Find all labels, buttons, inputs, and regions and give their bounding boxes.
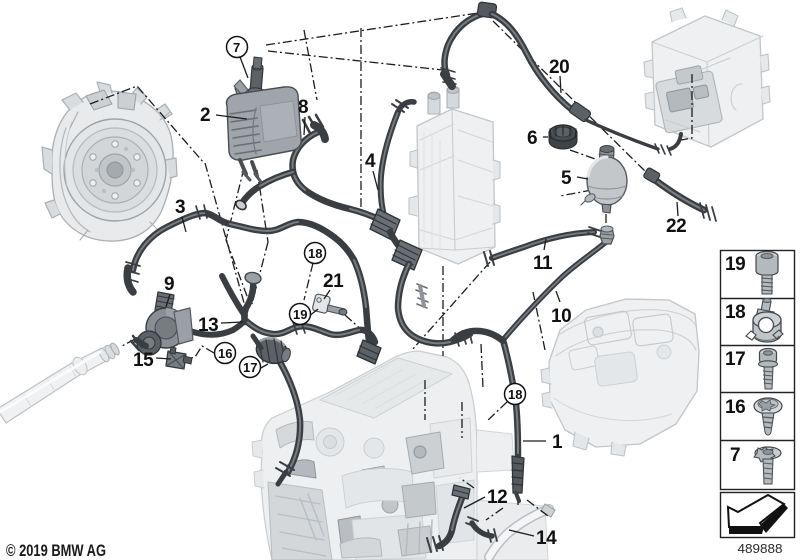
svg-text:7: 7 [730,445,740,466]
svg-text:16: 16 [218,346,232,361]
svg-text:11: 11 [533,253,553,274]
svg-text:489888: 489888 [738,541,783,556]
svg-text:12: 12 [487,487,507,508]
svg-text:3: 3 [175,197,185,218]
svg-text:18: 18 [508,387,522,402]
svg-text:17: 17 [243,360,257,375]
svg-text:16: 16 [725,397,745,418]
svg-text:6: 6 [527,128,537,149]
svg-text:22: 22 [666,216,686,237]
svg-text:4: 4 [365,151,376,172]
svg-text:19: 19 [293,307,307,322]
svg-text:20: 20 [549,57,569,78]
svg-text:8: 8 [298,97,308,118]
svg-text:9: 9 [164,274,174,295]
svg-text:7: 7 [233,40,240,55]
svg-text:17: 17 [725,349,745,370]
svg-text:© 2019 BMW AG: © 2019 BMW AG [6,542,106,560]
svg-text:5: 5 [561,168,572,189]
svg-text:15: 15 [133,350,154,371]
svg-text:2: 2 [200,105,210,126]
svg-text:1: 1 [552,432,563,453]
svg-text:10: 10 [551,306,571,327]
svg-text:21: 21 [323,271,344,292]
svg-text:19: 19 [725,254,745,275]
svg-text:18: 18 [725,302,745,323]
svg-text:13: 13 [198,315,218,336]
svg-text:18: 18 [308,246,322,261]
svg-text:14: 14 [536,528,557,549]
